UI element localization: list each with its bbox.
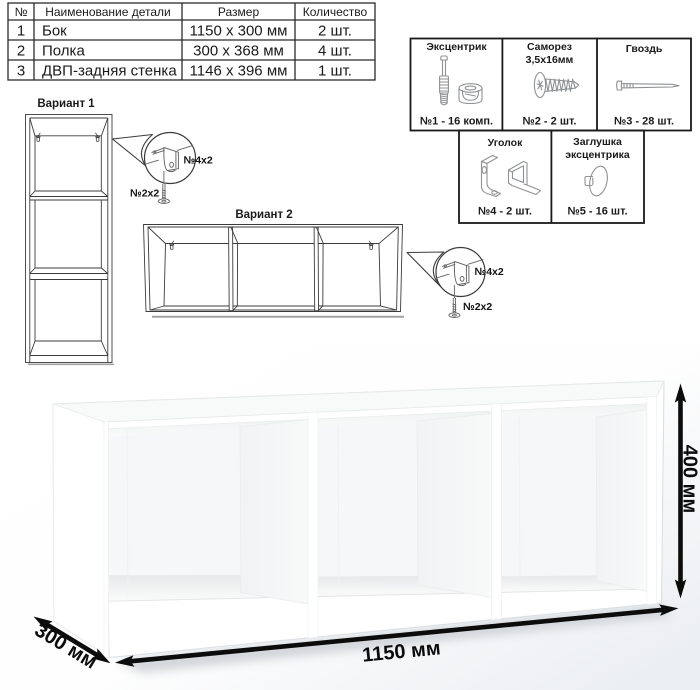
svg-text:№4 - 2 шт.: №4 - 2 шт. — [478, 206, 532, 218]
svg-text:№4х2: №4х2 — [184, 155, 213, 167]
svg-text:400 мм: 400 мм — [679, 445, 700, 514]
svg-text:№1 - 16 комп.: №1 - 16 комп. — [420, 116, 493, 128]
svg-text:Размер: Размер — [218, 5, 260, 19]
svg-text:№2 - 2 шт.: №2 - 2 шт. — [523, 116, 577, 128]
svg-text:3: 3 — [17, 63, 25, 80]
svg-text:№4х2: №4х2 — [475, 266, 504, 278]
svg-text:1: 1 — [17, 23, 25, 40]
svg-text:Бок: Бок — [42, 23, 67, 40]
svg-text:3,5х16мм: 3,5х16мм — [526, 54, 574, 66]
svg-text:1146 х 396 мм: 1146 х 396 мм — [190, 63, 288, 80]
svg-text:4 шт.: 4 шт. — [318, 43, 352, 60]
svg-text:Вариант 1: Вариант 1 — [37, 98, 95, 110]
svg-text:Наименование детали: Наименование детали — [45, 5, 171, 19]
svg-text:№2х2: №2х2 — [463, 301, 492, 313]
svg-text:№3 - 28 шт.: №3 - 28 шт. — [614, 116, 674, 128]
svg-text:2: 2 — [17, 43, 25, 60]
svg-text:Саморез: Саморез — [527, 41, 572, 53]
svg-text:Заглушка: Заглушка — [573, 136, 622, 148]
svg-text:Количество: Количество — [303, 5, 368, 19]
svg-text:Вариант 2: Вариант 2 — [235, 209, 292, 221]
svg-text:Уголок: Уголок — [488, 137, 523, 149]
svg-text:1150 х 300 мм: 1150 х 300 мм — [190, 23, 288, 40]
svg-text:Гвоздь: Гвоздь — [626, 43, 663, 55]
svg-text:Эксцентрик: Эксцентрик — [426, 41, 487, 53]
svg-text:2 шт.: 2 шт. — [318, 23, 352, 40]
svg-text:Полка: Полка — [42, 43, 85, 60]
svg-text:№: № — [15, 5, 28, 19]
svg-text:№2х2: №2х2 — [130, 188, 159, 200]
svg-text:1 шт.: 1 шт. — [318, 63, 352, 80]
svg-text:№5 - 16 шт.: №5 - 16 шт. — [567, 206, 627, 218]
svg-text:ДВП-задняя стенка: ДВП-задняя стенка — [42, 63, 177, 80]
svg-text:300 х 368 мм: 300 х 368 мм — [193, 43, 284, 60]
svg-text:эксцентрика: эксцентрика — [565, 149, 630, 161]
